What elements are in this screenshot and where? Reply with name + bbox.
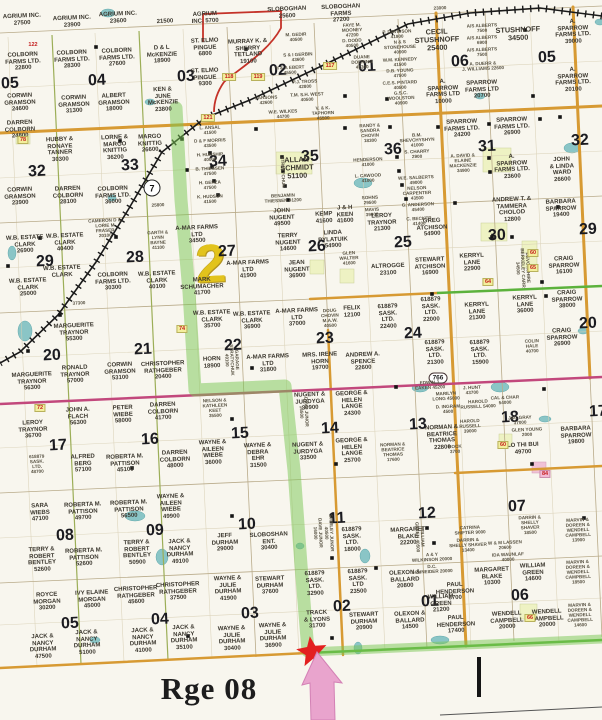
parcel-label: COLBORNFARMS LTD.30300 bbox=[95, 271, 131, 292]
map-labels-layer: 2 7 766 Rge 08 0504030201060532333435363… bbox=[0, 0, 602, 720]
parcel-label: L. ANSAL41500 bbox=[199, 124, 220, 135]
parcel-label: DARRIN &SHELLYSHAVER18500 bbox=[518, 514, 541, 535]
section-number: 32 bbox=[571, 132, 590, 151]
parcel-label: LEROYTRAYNOR21300 bbox=[367, 212, 397, 233]
parcel-label: MARVIN &DOREEN &WENDELLCAMPBELL13900 bbox=[565, 517, 592, 543]
parcel-label: CRAIGSPARROW26900 bbox=[546, 327, 578, 348]
parcel-label: SLOBOGHAN25600 bbox=[267, 6, 307, 21]
parcel-label: 618879SASK.LTD.22400 bbox=[377, 303, 398, 330]
section-number: 20 bbox=[579, 315, 598, 334]
parcel-label: A.SPARROWFARMS LTD.39000 bbox=[555, 18, 592, 46]
parcel-label: MARGOKNITTIG26600 bbox=[138, 134, 163, 155]
parcel-label: NORMAN &BEATRICETHOMAS17600 bbox=[380, 441, 406, 462]
section-number: 24 bbox=[404, 325, 423, 344]
parcel-label: WAYNE &JULIEDURHAM41900 bbox=[214, 575, 243, 603]
lsd-marker: 60 bbox=[497, 441, 508, 449]
parcel-label: STEWARTATCHISON16900 bbox=[414, 256, 446, 277]
parcel-label: GEORGE &HELENLANGE25700 bbox=[335, 437, 368, 465]
section-number: 16 bbox=[141, 431, 160, 450]
parcel-label: DAVE JUNOR16000 bbox=[312, 518, 323, 548]
parcel-label: A & YWILKINSON 20000 bbox=[412, 551, 453, 563]
parcel-label: MARILYNLONG 45000 bbox=[432, 390, 460, 401]
parcel-label: DOUGCHOVINM.A.W.40500 bbox=[321, 308, 340, 329]
parcel-label: ALFREDBERG57100 bbox=[70, 454, 95, 475]
parcel-label: MARGUERITETRAYNOR55300 bbox=[53, 322, 94, 344]
parcel-label: AGRIUM INC.27500 bbox=[3, 13, 42, 28]
section-number: 10 bbox=[238, 516, 257, 535]
parcel-label: FELIX12100 bbox=[343, 305, 361, 319]
parcel-label: CORWINGRAMSON53100 bbox=[104, 361, 136, 382]
section-number: 06 bbox=[511, 587, 530, 606]
section-number: 15 bbox=[231, 425, 250, 444]
parcel-label: WAYNE &AILEENWIEBE36000 bbox=[199, 439, 228, 467]
parcel-label: PETERWIEBE58000 bbox=[113, 405, 134, 426]
parcel-label: HENDERSON41000 bbox=[353, 156, 383, 167]
section-number: 21 bbox=[134, 341, 153, 360]
lsd-marker: 66 bbox=[524, 614, 535, 622]
parcel-label: JACK &NANCYDURHAM47500 bbox=[29, 633, 57, 661]
parcel-label: J. HUNT43700 bbox=[463, 385, 481, 396]
section-number: 23 bbox=[316, 330, 335, 349]
parcel-label: IVY ELAINEMORGAN45000 bbox=[75, 589, 109, 610]
parcel-label: 618879SASK.LTD.32900 bbox=[304, 570, 325, 597]
lsd-marker: 121 bbox=[201, 114, 215, 122]
section-number: 17 bbox=[49, 437, 68, 456]
parcel-label: ROBERTA M.PATTISON52600 bbox=[65, 547, 103, 568]
parcel-label: NUGENT &JURDYGA33500 bbox=[292, 441, 324, 462]
parcel-label: CORWINGRAMSON23900 bbox=[4, 186, 36, 207]
parcel-label: TERRYNUGENT14600 bbox=[275, 233, 301, 254]
parcel-label: COLBORNFARMS LTD.28300 bbox=[54, 49, 90, 70]
parcel-label: 618879SASK.LTD.15900 bbox=[469, 339, 490, 366]
parcel-label: ALBERTGRAMSON18000 bbox=[98, 92, 130, 113]
section-number: 32 bbox=[28, 163, 47, 182]
parcel-label: NELSONCARPENTER43500 bbox=[402, 185, 431, 201]
parcel-label: ANDREW T. &TAMMERACHOLOD12800 bbox=[492, 196, 532, 224]
parcel-label: DARRENCOLBORN28100 bbox=[52, 185, 83, 206]
parcel-label: W.M. KENNEDY41500 bbox=[383, 56, 418, 68]
parcel-label: LORNE &MARGOKNITTIG36200 bbox=[101, 134, 129, 162]
section-number: 31 bbox=[478, 138, 497, 157]
highway-7-shield: 7 bbox=[144, 180, 161, 197]
parcel-label: ALTROGGE23100 bbox=[371, 263, 405, 278]
parcel-label: COLBORNFARMS LTD.36000 bbox=[95, 185, 131, 206]
parcel-label: JACK &NANCYDURHAM49100 bbox=[166, 538, 194, 566]
parcel-label: JACK &NANCYDURHAM51000 bbox=[73, 629, 101, 657]
parcel-label: CRAIGSPARROW38000 bbox=[551, 289, 583, 310]
parcel-label: A-MAR FARMSLTD31800 bbox=[246, 353, 289, 375]
parcel-label: DARRENCOLBORN41700 bbox=[147, 401, 178, 422]
parcel-label: RONALDTRAYNOR57000 bbox=[60, 364, 90, 385]
parcel-label: JOHN& LINDAWARD26600 bbox=[549, 156, 574, 183]
parcel-label: SARAWIEBS47100 bbox=[30, 503, 51, 524]
parcel-label: AGRIUM INC.23600 bbox=[99, 11, 138, 26]
parcel-label: W.B. ESTATECLARK36900 bbox=[233, 310, 271, 331]
parcel-label: CAL & CHAR54000 bbox=[491, 394, 520, 405]
section-number: 12 bbox=[418, 505, 437, 524]
section-number: 07 bbox=[508, 498, 527, 517]
parcel-label: LINDAPYLATUIK54900 bbox=[318, 229, 348, 250]
parcel-label: W.B. ESTATECLARK bbox=[43, 265, 81, 280]
parcel-label: W & M LASSEN20600 bbox=[488, 539, 522, 551]
parcel-label: HUBBY &RONAYETANNER30300 bbox=[46, 136, 74, 164]
parcel-label: STEWARTDURHAM37600 bbox=[255, 575, 285, 596]
parcel-label: RANDY &SANDRACHOVIN18300 bbox=[359, 122, 381, 143]
parcel-label: DAVE JUNOR16500 bbox=[298, 397, 309, 427]
parcel-label: BENJAMINTHIESSEN 41200 bbox=[264, 192, 301, 204]
parcel-label: CATRINASHIFTER 9000 bbox=[454, 524, 486, 535]
section-number: 25 bbox=[394, 234, 413, 253]
parcel-label: CHRISTOPHERRATHGEBER20400 bbox=[141, 360, 185, 382]
section-number: 09 bbox=[146, 522, 165, 541]
parcel-label: A. DUERR &J. WILLIAMS 22600 bbox=[462, 60, 504, 72]
section-number: 28 bbox=[126, 249, 145, 268]
lsd-marker: 118 bbox=[222, 73, 236, 81]
parcel-label: KERRYLLANE36000 bbox=[512, 295, 537, 316]
parcel-label: JOHN A.FLACH56300 bbox=[66, 407, 91, 428]
lsd-marker: 65 bbox=[527, 264, 538, 272]
parcel-label: N & SSTONEHOUSE40900 bbox=[384, 39, 417, 56]
parcel-label: TERRY &ROBERTBENTLEY50900 bbox=[122, 539, 151, 567]
parcel-label: A-MAR FARMSLTD37000 bbox=[275, 307, 318, 329]
parcel-label: 23000 bbox=[434, 5, 447, 11]
parcel-label: IDA WAUNLAF40000 bbox=[492, 551, 524, 562]
parcel-label: CHRISTOPHERRATHGEBER37500 bbox=[156, 581, 200, 603]
parcel-label: 37300 bbox=[73, 300, 86, 306]
parcel-label: NELSON &KATHLEENKEET35500 bbox=[202, 397, 228, 418]
parcel-label: CRAIGSPARROW16100 bbox=[548, 255, 580, 276]
parcel-label: A.SPARROWFARMS LTD10000 bbox=[425, 78, 460, 106]
parcel-label: LO THI BUI49700 bbox=[507, 442, 539, 457]
parcel-label: KEN &JUNEMcKENZIE23800 bbox=[147, 86, 178, 114]
parcel-label: SLOBOSHANENT.30400 bbox=[249, 531, 288, 552]
parcel-label: TERRY &ROBERTBENTLEY52600 bbox=[27, 546, 56, 574]
parcel-label: ROYCEMORGAN30200 bbox=[33, 592, 61, 613]
parcel-label: 618879SASK.LTD.48700 bbox=[29, 454, 45, 475]
parcel-label: D & F MORRIS43500 bbox=[194, 137, 226, 148]
parcel-label: A/S ALBERTS7500 bbox=[467, 22, 498, 33]
parcel-label: BARBARASPARROW19800 bbox=[560, 425, 592, 446]
parcel-label: ANDREW A.SPENCE22600 bbox=[345, 351, 380, 372]
parcel-label: 618879SASK.LTD23500 bbox=[347, 568, 368, 595]
parcel-label: G. ANDERSON45400 bbox=[402, 201, 435, 212]
section-number: 27 bbox=[218, 243, 237, 262]
parcel-label: MRS. IRENEHORN19700 bbox=[302, 351, 338, 372]
section-number: 20 bbox=[43, 347, 62, 366]
parcel-label: PAULHENDERSON8700 bbox=[435, 581, 474, 602]
lsd-marker: 84 bbox=[539, 470, 550, 478]
parcel-label: GEORGE &HELENLANGE24300 bbox=[335, 390, 368, 418]
parcel-label: CAMERON D &LORIE MFRASER20100 bbox=[88, 217, 122, 239]
parcel-label: W.E. WILKES44700 bbox=[268, 108, 297, 119]
parcel-label: GARAGESTRATYCHUK49100 bbox=[224, 344, 240, 376]
parcel-label: D & LMcKENZIE18900 bbox=[146, 44, 177, 65]
parcel-label: COLBORNFARMS LTD.27600 bbox=[99, 47, 135, 68]
parcel-label: WAYNE &AILEENWIEBE49900 bbox=[157, 493, 186, 521]
section-number: 08 bbox=[56, 527, 75, 546]
parcel-label: STEWARTDURHAM20900 bbox=[349, 611, 379, 632]
parcel-label: ST. ELMOPINGUE6800 bbox=[191, 38, 220, 59]
parcel-label: WENDELLCAMPBELL20000 bbox=[490, 610, 524, 631]
parcel-label: GLEN YOUNG2000 bbox=[511, 426, 542, 437]
parcel-label: B.M.SHEVCHYSHYN41000 bbox=[399, 132, 435, 149]
parcel-label: MARVIN &DOREEN &WENDELLCAMPBELL14600 bbox=[567, 602, 594, 628]
parcel-label: L. CAWOOD41000 bbox=[355, 172, 382, 183]
parcel-label: MARKSCHUMACHER41700 bbox=[180, 276, 224, 298]
lsd-marker: 72 bbox=[34, 404, 45, 412]
parcel-label: MARGUERITETRAYNOR56300 bbox=[11, 371, 52, 393]
parcel-label: A/S ALBERTS7500 bbox=[467, 46, 498, 57]
parcel-label: BARBARASPARROW19400 bbox=[545, 198, 577, 219]
parcel-label: SPARROWFARMS LTD20700 bbox=[465, 79, 500, 100]
lsd-marker: 64 bbox=[482, 278, 493, 286]
section-number: 29 bbox=[579, 221, 598, 240]
parcel-label: KERRYLLANE22900 bbox=[459, 253, 484, 274]
section-number: 17 bbox=[589, 403, 602, 422]
parcel-label: CORWINGRAMSON31300 bbox=[58, 94, 90, 115]
parcel-label: T.M. S.H. WEST40500 bbox=[290, 91, 324, 103]
parcel-label: AGRIUMINC. 5700 bbox=[191, 11, 219, 25]
parcel-label: 25800 bbox=[152, 202, 165, 208]
parcel-label: G.S.C.WOOLSTON40900 bbox=[387, 90, 415, 106]
cadastral-map: 2 7 766 Rge 08 0504030201060532333435363… bbox=[0, 0, 602, 720]
parcel-label: S & I GERBIN43600 bbox=[283, 51, 313, 62]
parcel-label: PAULHENDERSON17400 bbox=[436, 614, 475, 635]
parcel-label: W.B. ESTATECLARK35700 bbox=[193, 309, 231, 330]
parcel-label: KERRYLLANE21300 bbox=[464, 302, 489, 323]
parcel-label: COLBORNFARMS LTD.22800 bbox=[5, 51, 41, 72]
parcel-label: A. DAVID &ELAINEMACKENZIE34900 bbox=[449, 152, 477, 173]
parcel-label: JAC GRAY37000 bbox=[508, 414, 532, 425]
parcel-label: P.J. TROSS42800 bbox=[292, 78, 317, 89]
parcel-label: JEANNUGENT36900 bbox=[284, 260, 310, 281]
parcel-label: W.B. ESTATECLARK26900 bbox=[6, 234, 44, 255]
parcel-label: TRACK& LYONS31700 bbox=[304, 610, 331, 631]
parcel-label: D. DODD40500 bbox=[342, 38, 362, 49]
lsd-marker: 122 bbox=[28, 42, 37, 48]
parcel-label: LEROYTRAYNOR36700 bbox=[18, 419, 48, 440]
parcel-label: CORWINGRAMSON24600 bbox=[4, 92, 36, 113]
parcel-label: D. INGRAM4500 bbox=[436, 403, 461, 414]
parcel-label: 21500 bbox=[157, 18, 174, 25]
parcel-label: ST. ELMOPINGUE9300 bbox=[191, 68, 220, 89]
parcel-label: D.B. YOUNG47500 bbox=[386, 67, 414, 78]
parcel-label: SHIRLEY JUNOR40500 bbox=[323, 514, 335, 552]
parcel-label: GARTH &LYNNBAYNE41100 bbox=[147, 229, 169, 250]
range-label: Rge 08 bbox=[161, 671, 257, 707]
section-number: 05 bbox=[538, 49, 557, 68]
lsd-marker: 78 bbox=[17, 136, 28, 144]
parcel-label: JACK &NANCYDURHAM41000 bbox=[129, 627, 157, 655]
parcel-label: ROCK3700 bbox=[448, 444, 462, 455]
parcel-label: 618879SASK.LTD.18000 bbox=[341, 526, 362, 553]
parcel-label: JACK &NANCYDURHAM35100 bbox=[170, 624, 198, 652]
parcel-label: ROBERTA M.PATTISON56500 bbox=[110, 499, 148, 520]
parcel-label: B. THIESSEN47500 bbox=[195, 165, 224, 176]
parcel-label: HAROLDRUSSELL39000 bbox=[459, 418, 481, 434]
parcel-label: CARSONS42600 bbox=[254, 94, 277, 105]
section-number: 30 bbox=[488, 227, 507, 246]
parcel-label: MARVIN &DOREEN &WENDELLCAMPBELL18500 bbox=[565, 559, 592, 585]
parcel-label: WILLIAMGREEN14600 bbox=[520, 563, 547, 584]
parcel-label: MARGARETBLAKE10300 bbox=[474, 566, 510, 587]
parcel-label: WILLIAMGREEN 40500 bbox=[414, 522, 425, 553]
parcel-label: AGRIUM INC.23900 bbox=[53, 15, 92, 30]
parcel-label: SOHNS29500 bbox=[362, 195, 379, 206]
parcel-label: W.B. ESTATECLARK40400 bbox=[46, 232, 84, 253]
parcel-label: S. CHARRY2900 bbox=[404, 148, 430, 159]
lsd-marker: 117 bbox=[323, 62, 337, 70]
parcel-label: 618879SASK.LTD.22000 bbox=[420, 296, 441, 323]
parcel-label: ROBERTA M.PATTISON49700 bbox=[64, 501, 102, 522]
lsd-marker: 119 bbox=[251, 73, 265, 81]
parcel-label: CHRISTOPHERRATHGEBER45600 bbox=[114, 585, 158, 607]
parcel-label: A-MAR FARMSLTD41900 bbox=[226, 259, 269, 281]
parcel-label: J & HKEEN41600 bbox=[336, 205, 354, 225]
parcel-label: DARRENCOLBORN48000 bbox=[159, 449, 190, 470]
parcel-label: A.SPARROWFARMS LTD.20100 bbox=[555, 66, 592, 94]
parcel-label: W.B. ESTATECLARK25000 bbox=[9, 277, 47, 298]
section-number: 05 bbox=[1, 75, 20, 94]
section-number: 03 bbox=[241, 605, 260, 624]
parcel-label: GLENWALTER41600 bbox=[339, 250, 359, 266]
section-number: 14 bbox=[321, 420, 340, 439]
parcel-label: CECILSTUSHNOFF25400 bbox=[414, 27, 460, 53]
parcel-label: H & A EBERT45500 bbox=[275, 64, 304, 75]
parcel-label: C. BECKER41400 bbox=[406, 215, 432, 226]
parcel-label: KEMP41600 bbox=[315, 211, 333, 225]
section-number: 04 bbox=[88, 72, 107, 91]
parcel-label: EDWIN J.EAKEN 45200 bbox=[415, 379, 446, 390]
parcel-label: D.C.SCHNEIDER 20000 bbox=[411, 563, 453, 575]
parcel-label: W.B. ESTATECLARK40100 bbox=[138, 270, 176, 291]
parcel-label: SPARROWFARMS LTD.24200 bbox=[444, 118, 480, 139]
parcel-label: SPARROWFARMS LTD.26900 bbox=[494, 116, 530, 137]
parcel-label: STUSHNOFF34500 bbox=[495, 25, 540, 43]
lsd-marker: 74 bbox=[176, 325, 187, 333]
parcel-label: H. HUDSHIP40000 bbox=[197, 151, 224, 162]
parcel-label: A.SPARROWFARMS LTD.23600 bbox=[494, 153, 531, 181]
parcel-label: MURRAY K. &SHERRYTETLAND19100 bbox=[228, 38, 268, 66]
parcel-label: A-MAR FARMSLTD34500 bbox=[175, 224, 218, 246]
parcel-label: P. DAVIDSON41900 bbox=[382, 28, 411, 39]
parcel-label: M. GEDIR40500 bbox=[285, 32, 306, 43]
parcel-label: JOHNNUGENT49500 bbox=[269, 208, 295, 229]
parcel-label: DARRIN &SHELLY SHAVER13400 bbox=[449, 537, 487, 554]
parcel-label: H. GERZA47500 bbox=[199, 179, 221, 190]
parcel-label: DUANEDOERING41300 bbox=[351, 54, 373, 70]
parcel-label: FAYE M.MOONEY47200 bbox=[341, 22, 362, 38]
parcel-label: WAYNE &DEBRAEHR31500 bbox=[244, 442, 273, 470]
parcel-label: V. & K.TAPHORN45500 bbox=[311, 105, 334, 121]
parcel-label: K. HUDSON41500 bbox=[197, 193, 223, 204]
parcel-label: 618879SASK.LTD.21300 bbox=[424, 339, 445, 366]
parcel-label: A/S ALBERTS6900 bbox=[467, 34, 498, 45]
lsd-marker: 60 bbox=[527, 249, 538, 257]
parcel-label: JEFFDURHAM29000 bbox=[211, 533, 239, 554]
parcel-label: WAYNE &JULIEDURHAM36900 bbox=[259, 622, 288, 650]
parcel-label: HORN18900 bbox=[203, 356, 221, 370]
parcel-label: COLINHALE40700 bbox=[525, 338, 540, 354]
parcel-label: ROBERTA M.PATTISON45100 bbox=[106, 453, 144, 474]
parcel-label: WAYNE &JULIEDURHAM30400 bbox=[218, 625, 247, 653]
parcel-label: OLEXON &BALLARD14500 bbox=[394, 610, 426, 631]
